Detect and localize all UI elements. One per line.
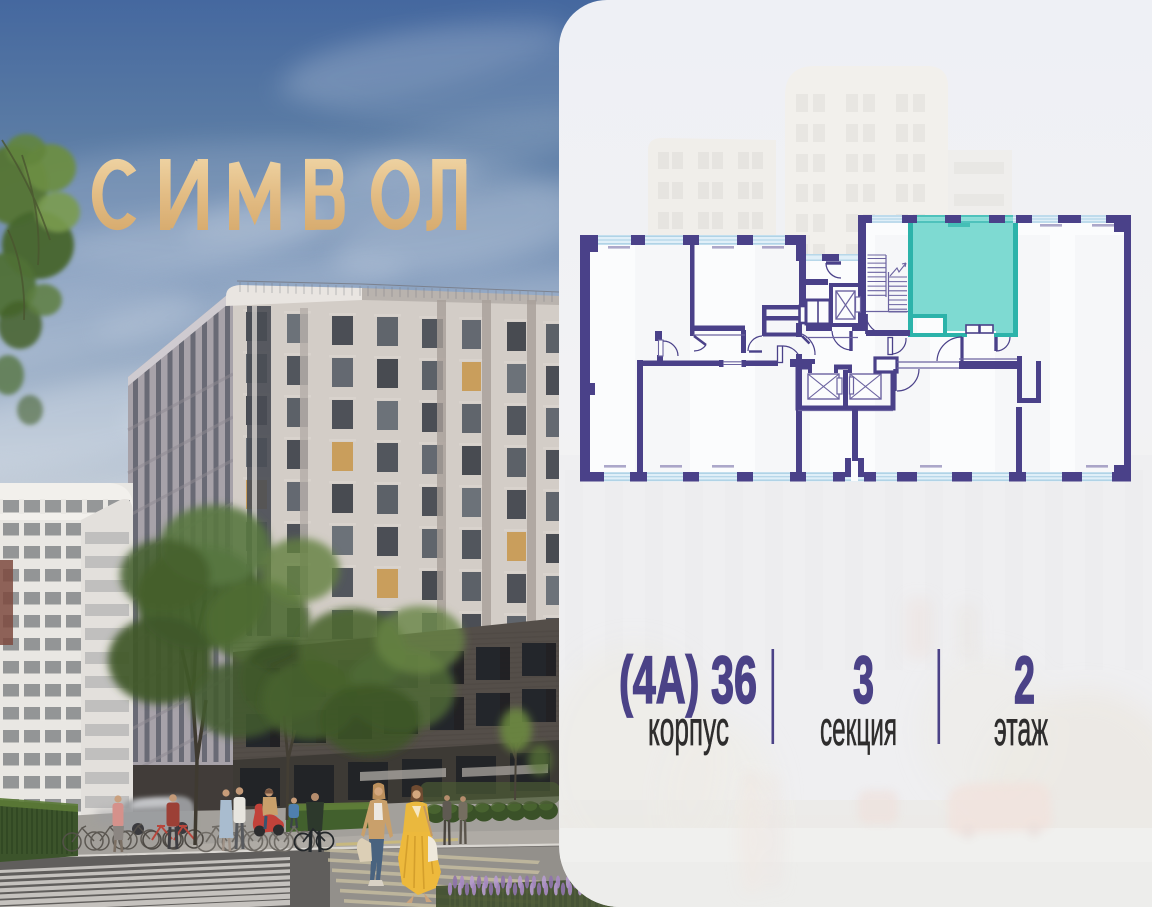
svg-text:этаж: этаж [994,703,1048,756]
svg-text:корпус: корпус [648,703,729,756]
svg-text:секция: секция [820,703,897,756]
